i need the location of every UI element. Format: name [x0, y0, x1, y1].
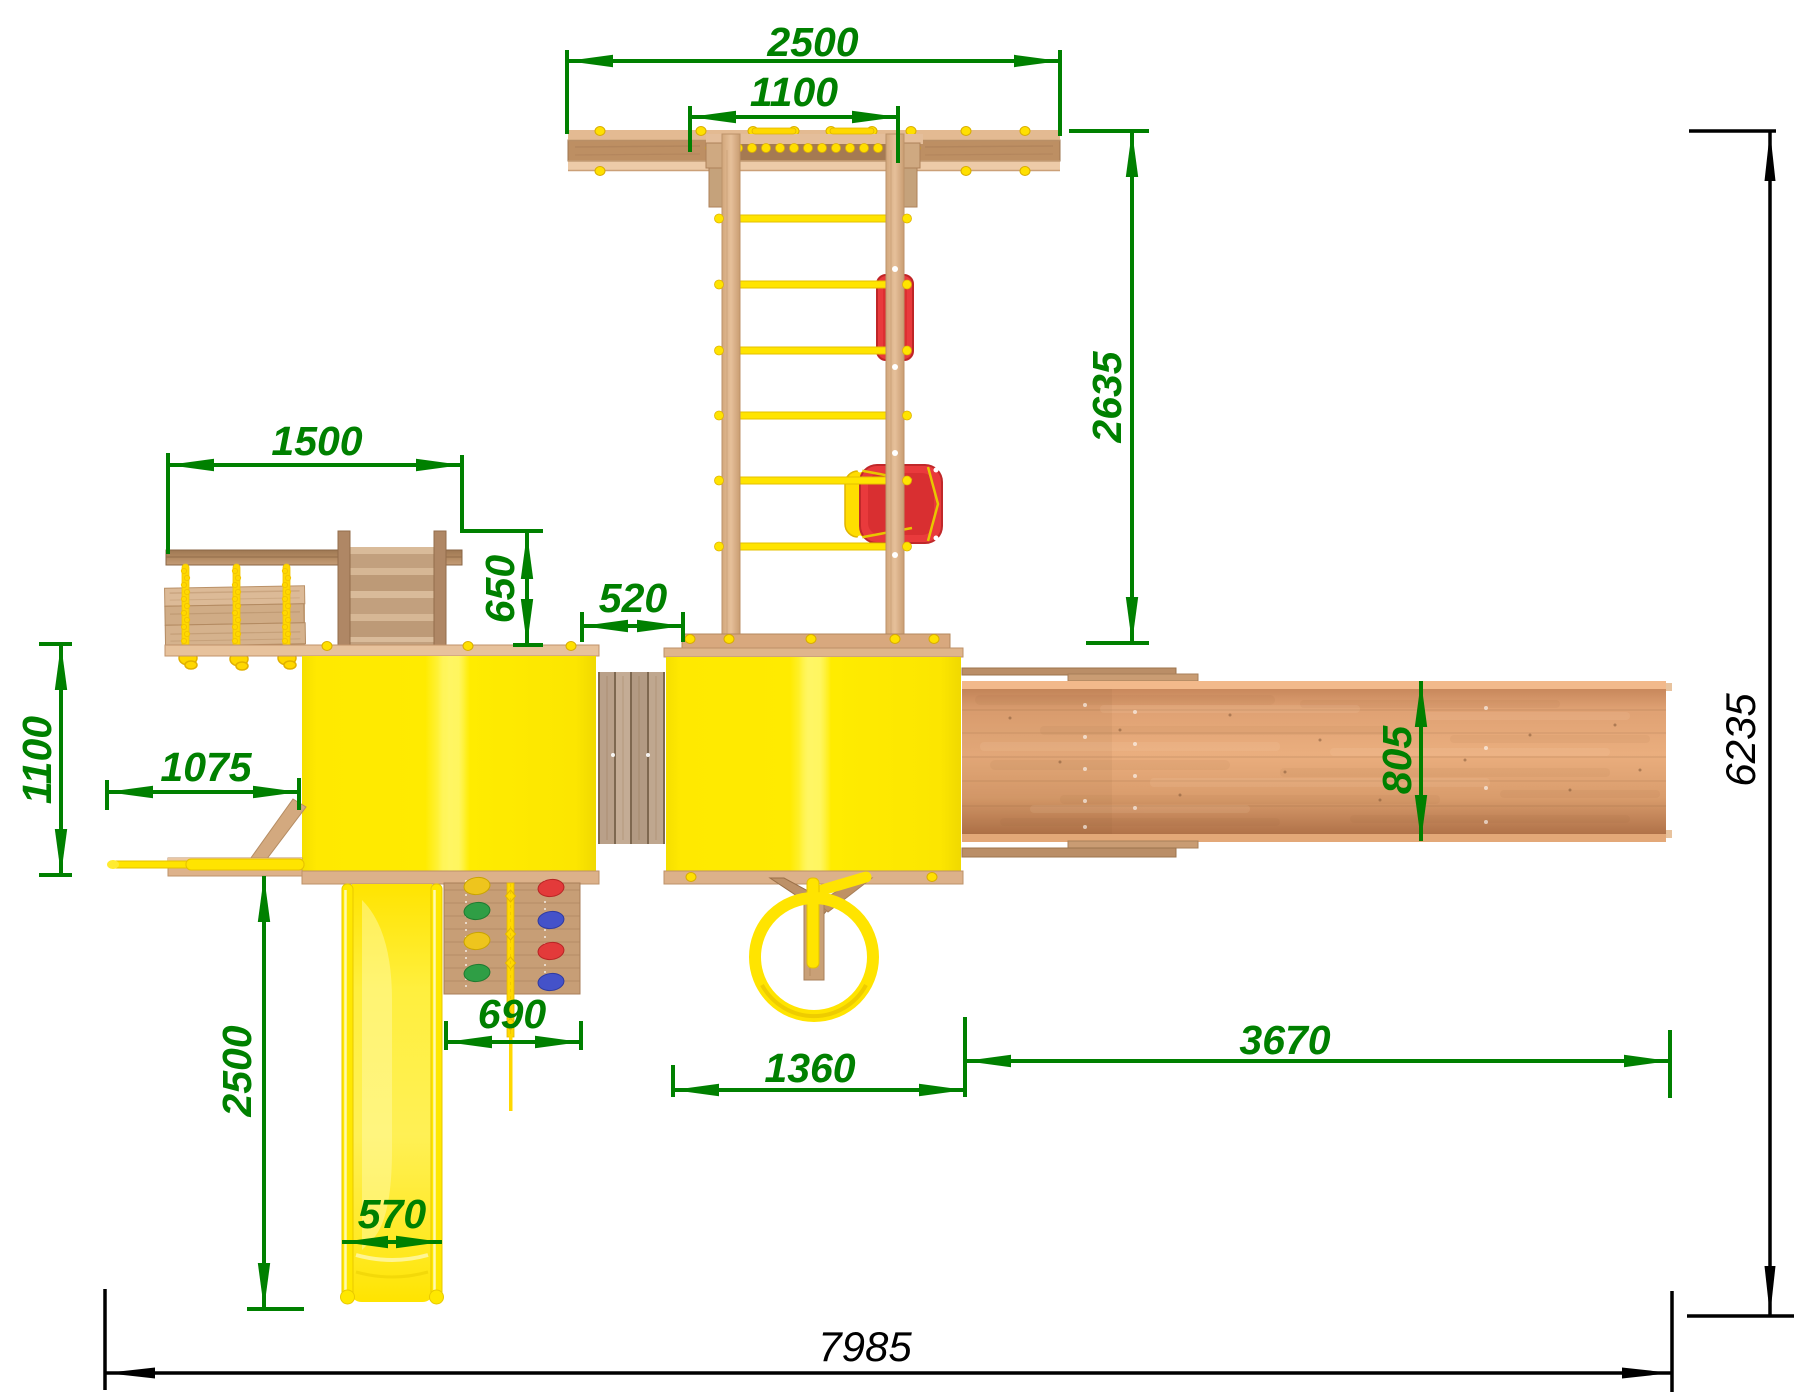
- svg-text:570: 570: [358, 1191, 427, 1237]
- svg-text:1075: 1075: [160, 744, 252, 790]
- svg-text:2635: 2635: [1084, 350, 1130, 443]
- svg-text:1100: 1100: [14, 716, 60, 804]
- svg-text:520: 520: [599, 575, 668, 621]
- svg-text:1100: 1100: [750, 69, 838, 115]
- svg-text:1500: 1500: [271, 418, 362, 464]
- svg-text:2500: 2500: [766, 19, 858, 65]
- svg-text:1360: 1360: [764, 1045, 855, 1091]
- svg-text:805: 805: [1374, 725, 1420, 795]
- svg-text:6235: 6235: [1717, 693, 1764, 787]
- svg-text:7985: 7985: [818, 1323, 912, 1370]
- svg-text:2500: 2500: [214, 1025, 260, 1117]
- svg-text:690: 690: [478, 991, 547, 1037]
- svg-text:650: 650: [477, 555, 523, 624]
- svg-text:3670: 3670: [1239, 1017, 1330, 1063]
